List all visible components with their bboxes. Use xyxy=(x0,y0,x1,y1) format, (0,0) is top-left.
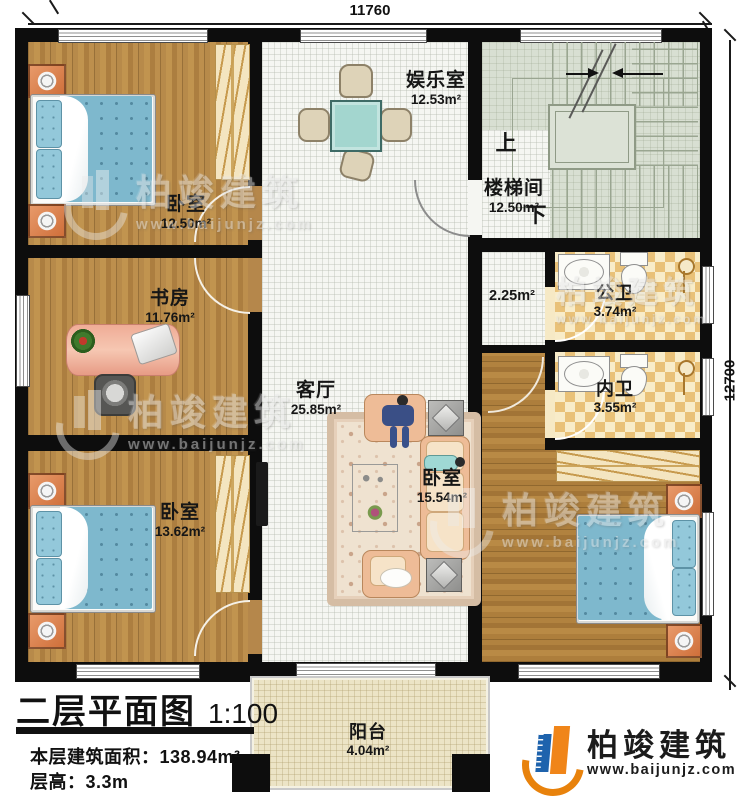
pillow xyxy=(36,100,62,148)
shower-head-icon xyxy=(678,258,695,275)
room-area: 13.62m² xyxy=(122,524,238,540)
stair-direction-line xyxy=(566,73,588,75)
wall xyxy=(482,238,700,252)
bed-sheet xyxy=(60,507,88,609)
nightstand-lamp xyxy=(28,64,66,98)
window xyxy=(520,29,662,43)
room-name: 内卫 xyxy=(582,379,648,400)
wall xyxy=(28,245,248,258)
floor-area-value: 138.94m² xyxy=(160,747,241,767)
pillow xyxy=(672,520,696,568)
nightstand-lamp xyxy=(28,204,66,238)
dimension-tick xyxy=(49,0,59,14)
arrow-left-icon xyxy=(612,68,623,78)
window xyxy=(702,512,714,616)
room-name: 卧室 xyxy=(396,468,488,490)
brand-logo-icon xyxy=(522,722,578,786)
floor-area-line: 本层建筑面积：138.94m² xyxy=(30,743,241,769)
dimension-top-line xyxy=(28,23,712,25)
wall xyxy=(468,235,482,252)
brand-website: www.baijunjz.com xyxy=(587,762,736,778)
private-bath-label: 内卫 3.55m² xyxy=(582,379,648,416)
wardrobe xyxy=(215,44,250,180)
nightstand-lamp xyxy=(28,473,66,509)
room-name: 卧室 xyxy=(122,502,238,524)
desk-chair xyxy=(94,374,136,416)
balcony-label: 阳台 4.04m² xyxy=(322,722,414,759)
wall xyxy=(482,345,545,353)
person-figure xyxy=(455,457,465,467)
nightstand-lamp xyxy=(666,484,702,518)
window xyxy=(76,664,200,679)
room-name: 客厅 xyxy=(276,380,356,402)
stair-up-label: 上 xyxy=(492,132,520,157)
plan-title: 二层平面图 xyxy=(16,693,196,731)
pillow xyxy=(36,558,62,605)
wall xyxy=(545,438,700,450)
shower-head-icon xyxy=(678,360,695,377)
bedroom-bl-label: 卧室 13.62m² xyxy=(122,502,238,540)
arrow-right-icon xyxy=(588,68,599,78)
person-figure xyxy=(402,426,409,448)
person-figure xyxy=(382,405,414,426)
person-figure xyxy=(390,426,397,448)
chair xyxy=(298,108,330,142)
room-area: 4.04m² xyxy=(322,743,414,759)
balcony-post xyxy=(452,754,490,792)
door-opening xyxy=(248,258,262,312)
stair-direction-line xyxy=(623,73,663,75)
room-name: 书房 xyxy=(112,288,228,310)
wall xyxy=(28,435,248,451)
window xyxy=(16,295,30,387)
window xyxy=(702,358,714,416)
plan-title-row: 二层平面图1:100 xyxy=(16,684,278,733)
room-area: 12.50m² xyxy=(128,216,244,232)
shower-hose xyxy=(683,373,685,395)
stair-down-label: 下 xyxy=(522,204,550,229)
plan-scale: 1:100 xyxy=(208,698,278,729)
room-name: 卧室 xyxy=(128,194,244,216)
room-area: 11.76m² xyxy=(112,310,228,326)
tv xyxy=(256,462,268,526)
sofa-cushion xyxy=(426,512,464,552)
room-area: 3.55m² xyxy=(582,400,648,416)
study-label: 书房 11.76m² xyxy=(112,288,228,326)
window xyxy=(58,29,208,43)
room-area: 25.85m² xyxy=(276,402,356,418)
brand-logo: 柏竣建筑 www.baijunjz.com xyxy=(522,722,736,786)
room-name: 娱乐室 xyxy=(382,70,490,92)
door-opening xyxy=(545,390,555,438)
pillow xyxy=(672,568,696,616)
room-area: 15.54m² xyxy=(396,490,488,506)
window xyxy=(300,29,427,43)
living-label: 客厅 25.85m² xyxy=(276,380,356,418)
chair xyxy=(380,108,412,142)
stair-landing xyxy=(548,104,636,170)
wall xyxy=(545,340,700,352)
bed-sheet xyxy=(644,516,670,620)
floor-height-label: 层高： xyxy=(30,772,86,792)
nightstand-lamp xyxy=(28,613,66,649)
pillow xyxy=(36,149,62,199)
door-opening xyxy=(248,186,262,240)
dimension-top-label: 11760 xyxy=(310,2,430,19)
public-bath-label: 公卫 3.74m² xyxy=(582,283,648,320)
wardrobe xyxy=(556,450,700,482)
sink-icon xyxy=(564,259,604,285)
bedroom-tl-label: 卧室 12.50m² xyxy=(128,194,244,232)
wall xyxy=(468,42,482,180)
chair xyxy=(339,64,373,98)
sofa-pillow xyxy=(380,568,412,588)
entertainment-label: 娱乐室 12.53m² xyxy=(382,70,490,108)
bed-sheet xyxy=(60,96,88,202)
dimension-right-label: 12700 xyxy=(722,349,739,413)
corridor-area-label: 2.25m² xyxy=(472,288,552,305)
window xyxy=(518,664,660,679)
wall xyxy=(248,42,262,662)
room-area: 3.74m² xyxy=(582,304,648,320)
title-underline xyxy=(16,727,254,734)
floor-height-line: 层高：3.3m xyxy=(30,768,129,794)
coffee-table xyxy=(352,464,398,532)
brand-company-name: 柏竣建筑 xyxy=(587,730,736,763)
bedroom-br-label: 卧室 15.54m² xyxy=(396,468,488,506)
shower-hose xyxy=(683,271,685,293)
room-name: 公卫 xyxy=(582,283,648,304)
room-area: 12.53m² xyxy=(382,92,490,108)
game-table xyxy=(330,100,382,152)
floor-height-value: 3.3m xyxy=(86,772,129,792)
floor-area-label: 本层建筑面积： xyxy=(30,747,160,767)
door-opening xyxy=(248,600,262,654)
window xyxy=(702,266,714,324)
nightstand-lamp xyxy=(666,624,702,658)
pillow xyxy=(36,511,62,557)
plant xyxy=(70,328,96,354)
room-name: 楼梯间 xyxy=(464,178,564,200)
room-name: 阳台 xyxy=(322,722,414,743)
floor-plan-canvas: 11760 12700 xyxy=(0,0,750,807)
